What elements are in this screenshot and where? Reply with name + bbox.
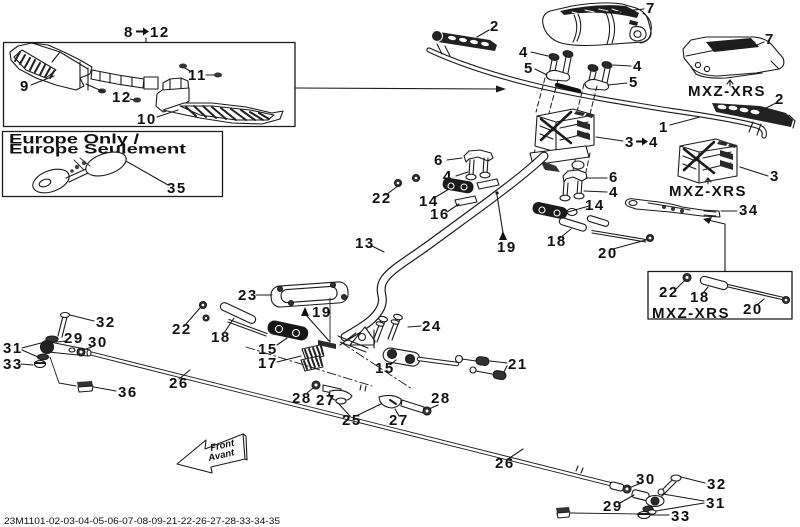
svg-text:4: 4 xyxy=(633,58,643,75)
svg-text:6: 6 xyxy=(434,152,444,169)
svg-text:13: 13 xyxy=(355,235,375,252)
svg-text:33: 33 xyxy=(3,356,23,373)
svg-text:14: 14 xyxy=(585,197,605,214)
svg-text:20: 20 xyxy=(743,301,763,318)
svg-text:23: 23 xyxy=(238,287,258,304)
svg-text:4: 4 xyxy=(649,134,659,151)
svg-text:18: 18 xyxy=(690,289,710,306)
svg-text:1: 1 xyxy=(659,119,669,136)
svg-text:23M1101-02-03-04-05-06-07-08-0: 23M1101-02-03-04-05-06-07-08-09-21-22-26… xyxy=(4,516,280,526)
svg-text:29: 29 xyxy=(603,498,623,515)
svg-text:16: 16 xyxy=(430,206,450,223)
svg-text:33: 33 xyxy=(671,508,691,525)
svg-text:22: 22 xyxy=(659,284,679,301)
svg-text:10: 10 xyxy=(137,111,157,128)
svg-text:MXZ-XRS: MXZ-XRS xyxy=(652,305,730,322)
svg-text:32: 32 xyxy=(96,314,116,331)
svg-text:MXZ-XRS: MXZ-XRS xyxy=(688,83,766,100)
svg-text:26: 26 xyxy=(495,455,515,472)
svg-text:26: 26 xyxy=(169,375,189,392)
svg-text:34: 34 xyxy=(739,202,759,219)
svg-text:7: 7 xyxy=(646,0,656,17)
svg-text:MXZ-XRS: MXZ-XRS xyxy=(669,183,747,200)
svg-text:27: 27 xyxy=(389,412,409,429)
svg-text:27: 27 xyxy=(316,392,336,409)
svg-text:3: 3 xyxy=(625,134,635,151)
svg-text:18: 18 xyxy=(211,329,231,346)
svg-text:2: 2 xyxy=(775,91,785,108)
svg-text:5: 5 xyxy=(524,60,534,77)
svg-text:28: 28 xyxy=(292,390,312,407)
svg-text:5: 5 xyxy=(629,74,639,91)
svg-text:7: 7 xyxy=(765,31,775,48)
svg-text:32: 32 xyxy=(707,476,727,493)
svg-text:35: 35 xyxy=(167,180,187,197)
svg-text:22: 22 xyxy=(172,321,192,338)
svg-text:31: 31 xyxy=(3,340,23,357)
svg-text:12: 12 xyxy=(112,89,132,106)
svg-text:20: 20 xyxy=(598,245,618,262)
svg-text:30: 30 xyxy=(88,334,108,351)
svg-text:11: 11 xyxy=(188,67,207,84)
svg-text:4: 4 xyxy=(609,184,619,201)
svg-text:3: 3 xyxy=(770,168,780,185)
svg-text:31: 31 xyxy=(706,495,726,512)
svg-text:30: 30 xyxy=(636,471,656,488)
svg-text:19: 19 xyxy=(312,304,332,321)
svg-text:17: 17 xyxy=(258,355,278,372)
svg-text:36: 36 xyxy=(118,384,138,401)
svg-text:12: 12 xyxy=(150,24,170,41)
svg-text:8: 8 xyxy=(124,24,134,41)
svg-text:Europe Seulement: Europe Seulement xyxy=(9,142,187,157)
svg-text:4: 4 xyxy=(519,44,529,61)
svg-text:29: 29 xyxy=(64,330,84,347)
svg-text:15: 15 xyxy=(375,360,395,377)
svg-text:2: 2 xyxy=(490,18,500,35)
svg-text:21: 21 xyxy=(508,356,528,373)
svg-text:28: 28 xyxy=(431,390,451,407)
svg-text:9: 9 xyxy=(20,78,30,95)
svg-text:19: 19 xyxy=(497,239,517,256)
svg-text:24: 24 xyxy=(422,318,442,335)
